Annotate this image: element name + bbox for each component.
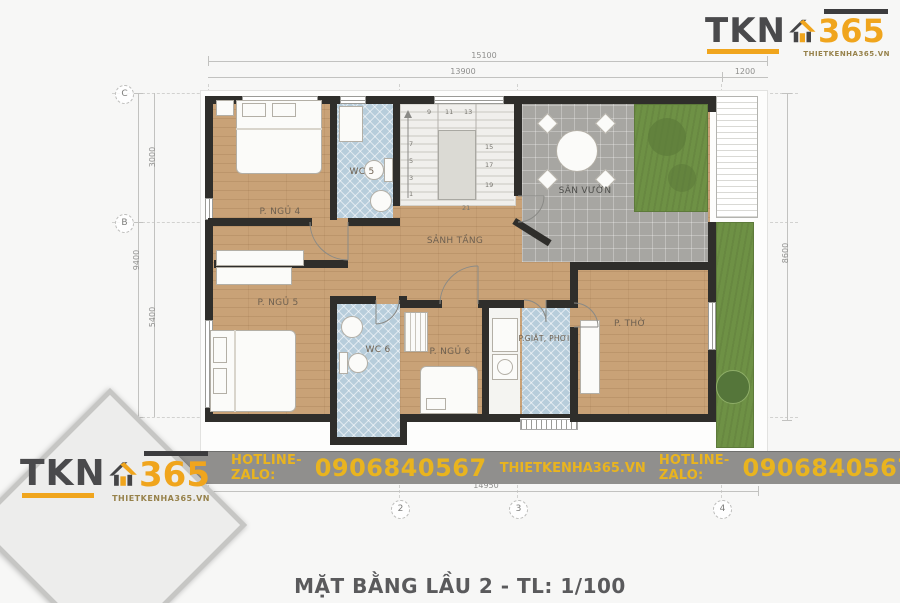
room-label-worship: P. THỜ <box>600 319 660 329</box>
dimension-tick <box>782 93 792 94</box>
room-label-laundry: P.GIẶT, PHƠI <box>510 334 578 343</box>
stair-step-number: 21 <box>462 204 470 212</box>
brand-logo-top: TKN 365 THIETKENHA365.VN <box>705 4 890 66</box>
room-label-wc6: WC 6 <box>356 345 400 355</box>
logo-bar-yellow <box>22 493 94 498</box>
house-icon <box>107 459 138 489</box>
house-icon <box>787 17 817 45</box>
stair-step-number: 19 <box>485 181 493 189</box>
dimension-tick <box>758 486 759 496</box>
grid-bubble-col-2: 2 <box>391 500 410 519</box>
room-label-bedroom6: P. NGỦ 6 <box>420 347 480 357</box>
stair-step-number: 15 <box>485 143 493 151</box>
brand-logo-corner: TKN 365 THIETKENHA365.VN <box>20 446 210 510</box>
brand-prefix: TKN <box>20 460 106 489</box>
brand-suffix: 365 <box>818 19 885 45</box>
dimension-tick <box>133 222 143 223</box>
hotline-phone: 0906840567 <box>315 454 487 482</box>
dimension-tick <box>782 420 792 421</box>
grid-bubble-row-c: C <box>115 85 134 104</box>
dimension-label: 9400 <box>132 238 144 282</box>
stair-step-number: 17 <box>485 161 493 169</box>
stair-step-number: 1 <box>409 190 413 198</box>
dimension-label: 8600 <box>781 231 793 275</box>
brand-prefix: TKN <box>705 18 786 45</box>
stair-step-number: 7 <box>409 140 413 148</box>
grid-bubble-row-b: B <box>115 214 134 233</box>
dimension-line <box>208 61 768 62</box>
stair-step-number: 5 <box>409 157 413 165</box>
room-label-bedroom4: P. NGỦ 4 <box>250 207 310 217</box>
grid-bubble-col-3: 3 <box>509 500 528 519</box>
logo-bar-dark <box>824 9 888 14</box>
dimension-label: 1200 <box>722 67 768 76</box>
brand-website: THIETKENHA365.VN <box>803 50 890 58</box>
hotline-banner: HOTLINE-ZALO: 0906840567 THIETKENHA365.V… <box>145 451 900 484</box>
dimension-tick <box>208 56 209 66</box>
hotline-label: HOTLINE-ZALO: <box>231 453 302 483</box>
logo-bar-dark <box>144 451 208 456</box>
dimension-label: 15100 <box>449 51 519 60</box>
stair-step-number: 3 <box>409 174 413 182</box>
dimension-label: 5400 <box>148 295 160 339</box>
logo-bar-yellow <box>707 49 779 54</box>
hotline-phone: 0906840567 <box>743 454 900 482</box>
stair-step-number: 13 <box>464 108 472 116</box>
website-text: THIETKENHA365.VN <box>500 461 646 476</box>
stair-step-number: 9 <box>427 108 431 116</box>
dimension-label: 3000 <box>148 135 160 179</box>
dimension-line <box>208 491 759 492</box>
stair-step-number: 11 <box>445 108 453 116</box>
room-label-bedroom5: P. NGỦ 5 <box>248 298 308 308</box>
dimension-line <box>208 77 722 78</box>
dimension-label: 13900 <box>428 67 498 76</box>
dimension-line <box>722 77 768 78</box>
hotline-label: HOTLINE-ZALO: <box>659 453 730 483</box>
grid-bubble-col-4: 4 <box>713 500 732 519</box>
room-label-hall: SẢNH TẦNG <box>420 236 490 246</box>
brand-suffix: 365 <box>139 462 210 489</box>
room-label-garden: SÂN VƯỜN <box>540 186 630 196</box>
floor-plan-page: 1 3 5 7 9 11 13 15 17 19 21 P. NGỦ 4 WC … <box>0 0 900 603</box>
brand-website: THIETKENHA365.VN <box>112 494 210 503</box>
dimension-tick <box>133 93 143 94</box>
room-label-wc5: WC 5 <box>340 167 384 177</box>
